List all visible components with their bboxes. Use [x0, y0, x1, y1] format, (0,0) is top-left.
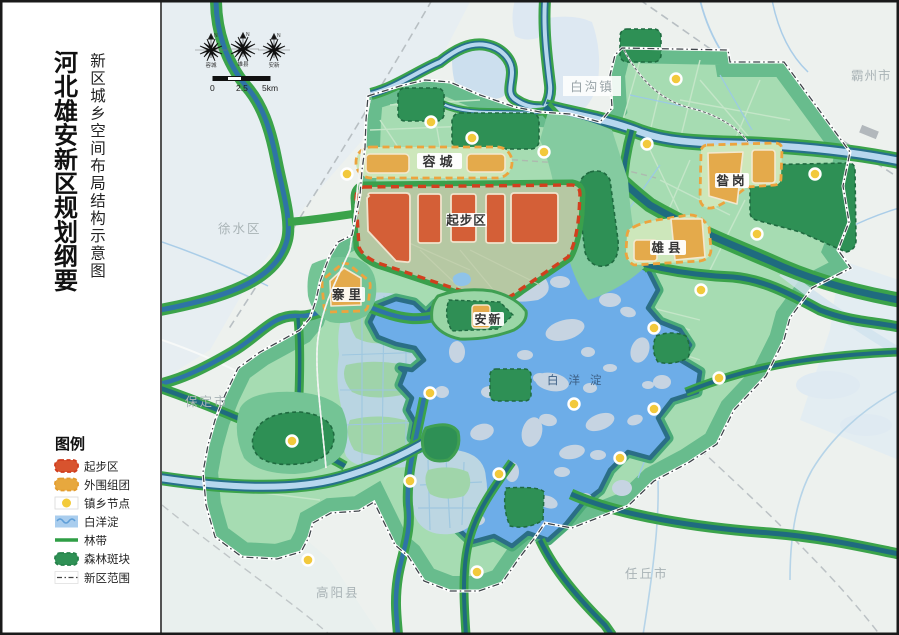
svg-text:河北雄安新区规划纲要: 河北雄安新区规划纲要 [53, 50, 78, 295]
svg-text:白洋淀: 白洋淀 [547, 373, 612, 387]
svg-text:容城: 容城 [205, 61, 217, 69]
svg-text:外围组团: 外围组团 [84, 478, 130, 492]
svg-text:任丘市: 任丘市 [625, 566, 669, 581]
svg-text:高阳县: 高阳县 [316, 585, 360, 600]
svg-text:5km: 5km [262, 83, 278, 93]
svg-text:图例: 图例 [55, 435, 85, 453]
svg-text:森林斑块: 森林斑块 [84, 552, 130, 566]
svg-text:霸州市: 霸州市 [851, 68, 892, 83]
svg-text:白洋淀: 白洋淀 [84, 515, 119, 529]
svg-text:安新: 安新 [268, 61, 280, 69]
svg-text:新区范围: 新区范围 [84, 571, 130, 585]
svg-text:N: N [277, 33, 281, 39]
svg-text:0: 0 [210, 83, 215, 93]
svg-text:安新: 安新 [474, 312, 502, 327]
svg-text:雄县: 雄县 [237, 60, 249, 68]
svg-text:起步区: 起步区 [445, 213, 487, 228]
svg-text:徐水区: 徐水区 [218, 221, 262, 236]
svg-text:白沟镇: 白沟镇 [570, 79, 614, 94]
svg-text:容城: 容城 [421, 154, 456, 169]
svg-text:寨里: 寨里 [331, 287, 365, 302]
svg-text:2.5: 2.5 [236, 83, 248, 93]
svg-text:雄县: 雄县 [650, 240, 684, 255]
svg-text:昝岗: 昝岗 [716, 173, 747, 188]
svg-text:保定市: 保定市 [185, 394, 229, 409]
svg-text:起步区: 起步区 [84, 461, 119, 474]
svg-text:N: N [246, 32, 250, 38]
svg-text:N: N [214, 33, 218, 39]
svg-text:新区城乡空间布局结构示意图: 新区城乡空间布局结构示意图 [90, 52, 106, 280]
svg-text:林带: 林带 [84, 534, 107, 548]
svg-text:镇乡节点: 镇乡节点 [84, 497, 130, 511]
